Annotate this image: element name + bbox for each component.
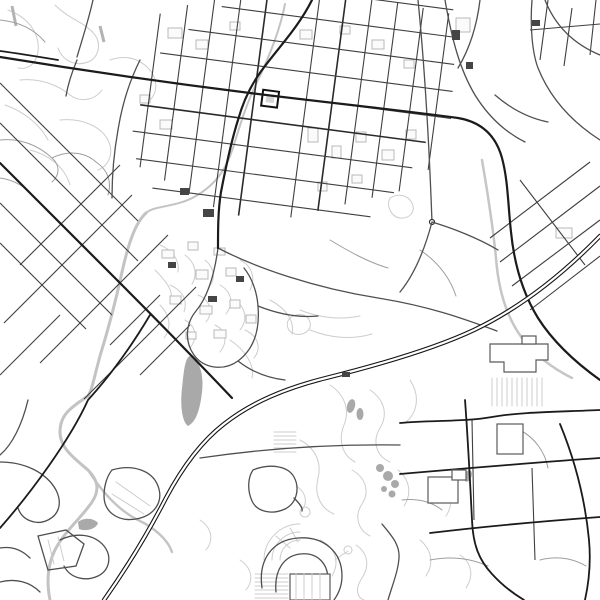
minor-roads-layer: [0, 20, 586, 566]
tree-blob: [376, 464, 384, 472]
small-dark-pond: [78, 519, 98, 530]
tree-blob: [381, 486, 387, 492]
main-artery: [0, 57, 600, 380]
tree-blob: [391, 480, 399, 488]
outer-grids: [472, 0, 600, 560]
bigbox-store: [490, 344, 548, 372]
pond: [181, 356, 202, 426]
gray-patch: [357, 408, 364, 420]
buildings-light-layer: [140, 18, 572, 339]
gray-patch: [345, 398, 356, 414]
tree-blob: [383, 471, 393, 481]
tree-blob: [389, 491, 396, 498]
bigbox-store: [497, 424, 523, 454]
map-frame: [0, 0, 600, 600]
campus-avenue: [218, 248, 497, 331]
map-canvas[interactable]: [0, 0, 600, 600]
diagonal-avenue: [218, 0, 312, 248]
diagonal-neighborhood-grid: [0, 83, 196, 399]
bigbox-store: [428, 477, 458, 503]
